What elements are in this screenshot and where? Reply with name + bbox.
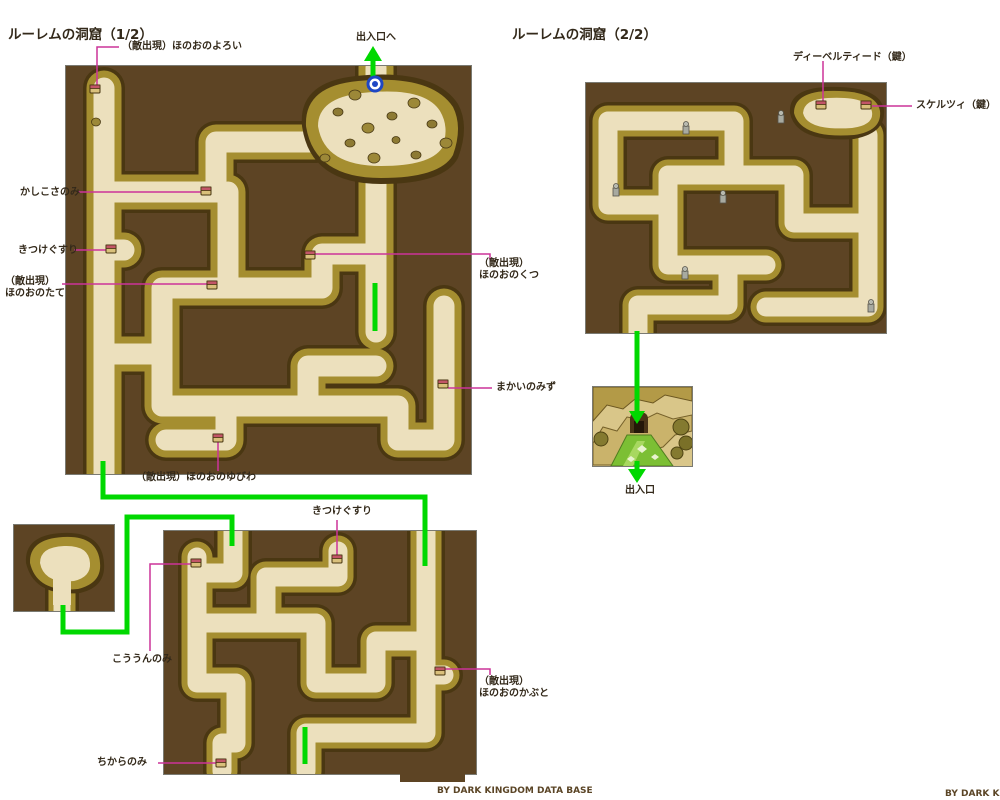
label-wisdom-seed: かしこさのみ bbox=[20, 187, 80, 199]
label-exit-up: 出入口へ bbox=[356, 32, 396, 44]
label-key-item-2: スケルツィ（鍵） bbox=[916, 100, 996, 112]
cave-map-small-room bbox=[13, 524, 115, 612]
overworld-exit-map bbox=[592, 386, 693, 467]
page: { "titles": { "map1": "ルーレムの洞窟（1/2）", "m… bbox=[0, 0, 1000, 800]
label-luck-seed: こううんのみ bbox=[112, 654, 172, 666]
small-room-chamber bbox=[26, 533, 104, 605]
cave-map-3-corridors bbox=[197, 531, 444, 771]
label-demon-water: まかいのみず bbox=[496, 382, 556, 394]
label-strength-seed: ちからのみ bbox=[97, 757, 147, 769]
cave-entrance-icon bbox=[630, 412, 648, 433]
cave-map-2-key-room bbox=[790, 87, 884, 140]
overworld-exit-canvas bbox=[593, 387, 692, 466]
cave-map-2-corridors bbox=[608, 121, 868, 333]
cave-map-1 bbox=[65, 65, 472, 475]
credit-right: BY DARK KIN bbox=[945, 789, 1000, 799]
cave-map-2-canvas bbox=[586, 83, 886, 333]
cave-map-1-entry-room bbox=[302, 75, 464, 184]
label-smelling-salts-2: きつけぐすり bbox=[312, 506, 372, 518]
cave-map-small-room-canvas bbox=[14, 525, 114, 611]
label-key-item-1: ディーベルティード（鍵） bbox=[793, 52, 912, 64]
cave-map-3-canvas bbox=[164, 531, 476, 774]
arrowhead-exit-down bbox=[628, 469, 646, 483]
arrowhead-exit-up bbox=[364, 46, 382, 61]
cave-map-3 bbox=[163, 530, 477, 775]
cave-map-1-canvas bbox=[66, 66, 471, 474]
label-exit: 出入口 bbox=[625, 485, 655, 497]
label-flame-helmet: （敵出現） ほのおのかぶと bbox=[479, 676, 549, 700]
label-flame-boots: （敵出現） ほのおのくつ bbox=[479, 258, 539, 282]
cave-map-2 bbox=[585, 82, 887, 334]
label-flame-armor: （敵出現）ほのおのよろい bbox=[122, 41, 242, 53]
page-title-map1: ルーレムの洞窟（1/2） bbox=[8, 23, 153, 43]
label-flame-shield: （敵出現） ほのおのたて bbox=[5, 276, 65, 300]
label-flame-ring: （敵出現）ほのおのゆびわ bbox=[136, 472, 256, 484]
page-title-map2: ルーレムの洞窟（2/2） bbox=[512, 23, 657, 43]
credit-center: BY DARK KINGDOM DATA BASE bbox=[437, 786, 593, 796]
cave-map-3-bottom-stub bbox=[400, 773, 465, 782]
label-smelling-salts-1: きつけぐすり bbox=[18, 245, 78, 257]
